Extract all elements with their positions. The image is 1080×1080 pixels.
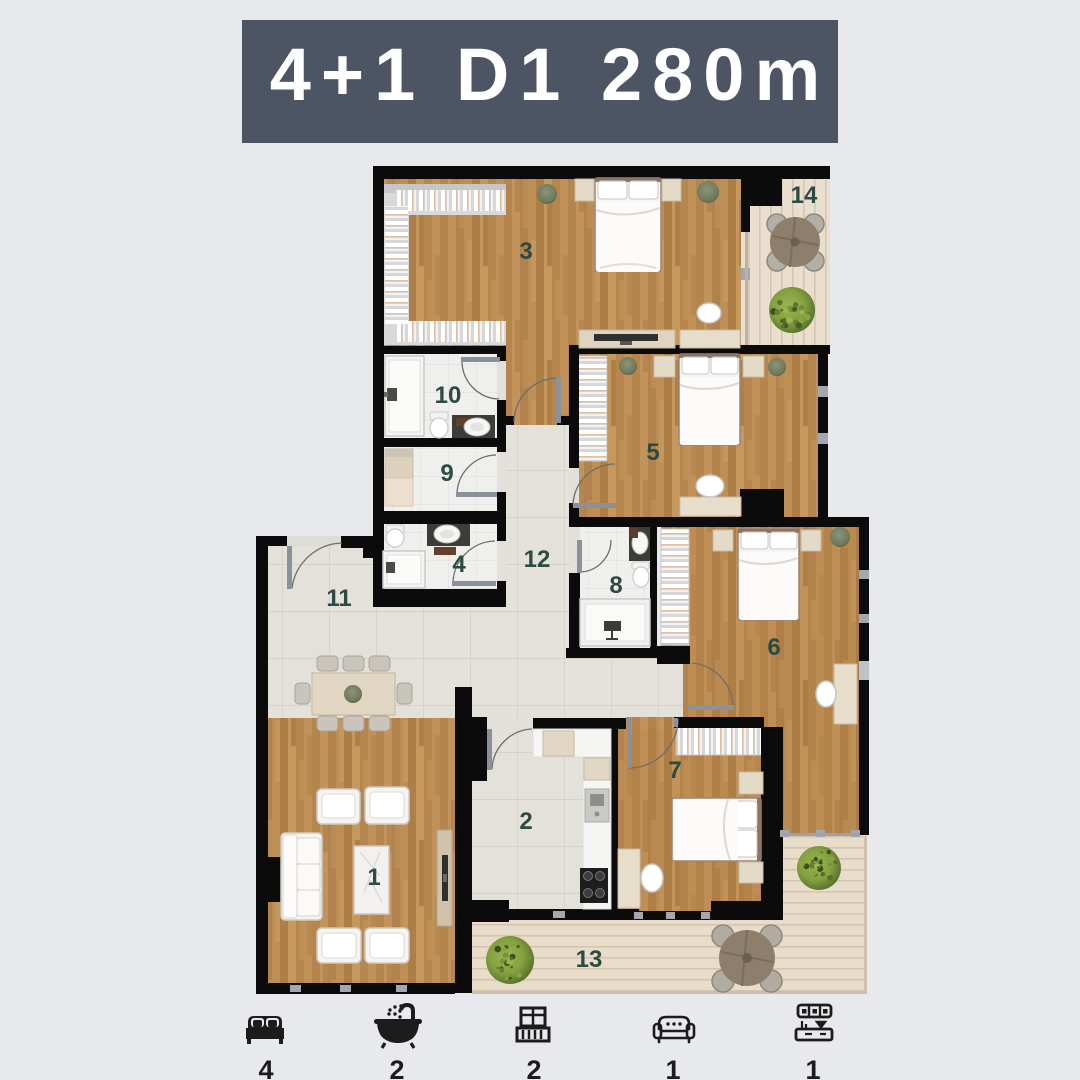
svg-text:1: 1	[665, 1055, 680, 1080]
svg-text:8: 8	[609, 572, 622, 599]
svg-text:1: 1	[367, 864, 380, 891]
svg-text:3: 3	[519, 238, 532, 265]
svg-text:4: 4	[258, 1055, 273, 1080]
svg-text:14: 14	[791, 182, 818, 209]
svg-text:2: 2	[526, 1055, 541, 1080]
svg-text:11: 11	[326, 585, 351, 612]
svg-text:12: 12	[524, 546, 551, 573]
svg-text:6: 6	[767, 634, 780, 661]
svg-text:2: 2	[519, 808, 532, 835]
svg-text:10: 10	[435, 382, 462, 409]
svg-text:4: 4	[452, 551, 466, 578]
svg-text:4+1 D1 280m: 4+1 D1 280m	[270, 33, 831, 116]
svg-text:13: 13	[576, 946, 603, 973]
svg-text:1: 1	[805, 1055, 820, 1080]
svg-text:9: 9	[440, 460, 453, 487]
svg-text:5: 5	[646, 439, 659, 466]
svg-text:2: 2	[389, 1055, 404, 1080]
svg-text:7: 7	[668, 757, 681, 784]
